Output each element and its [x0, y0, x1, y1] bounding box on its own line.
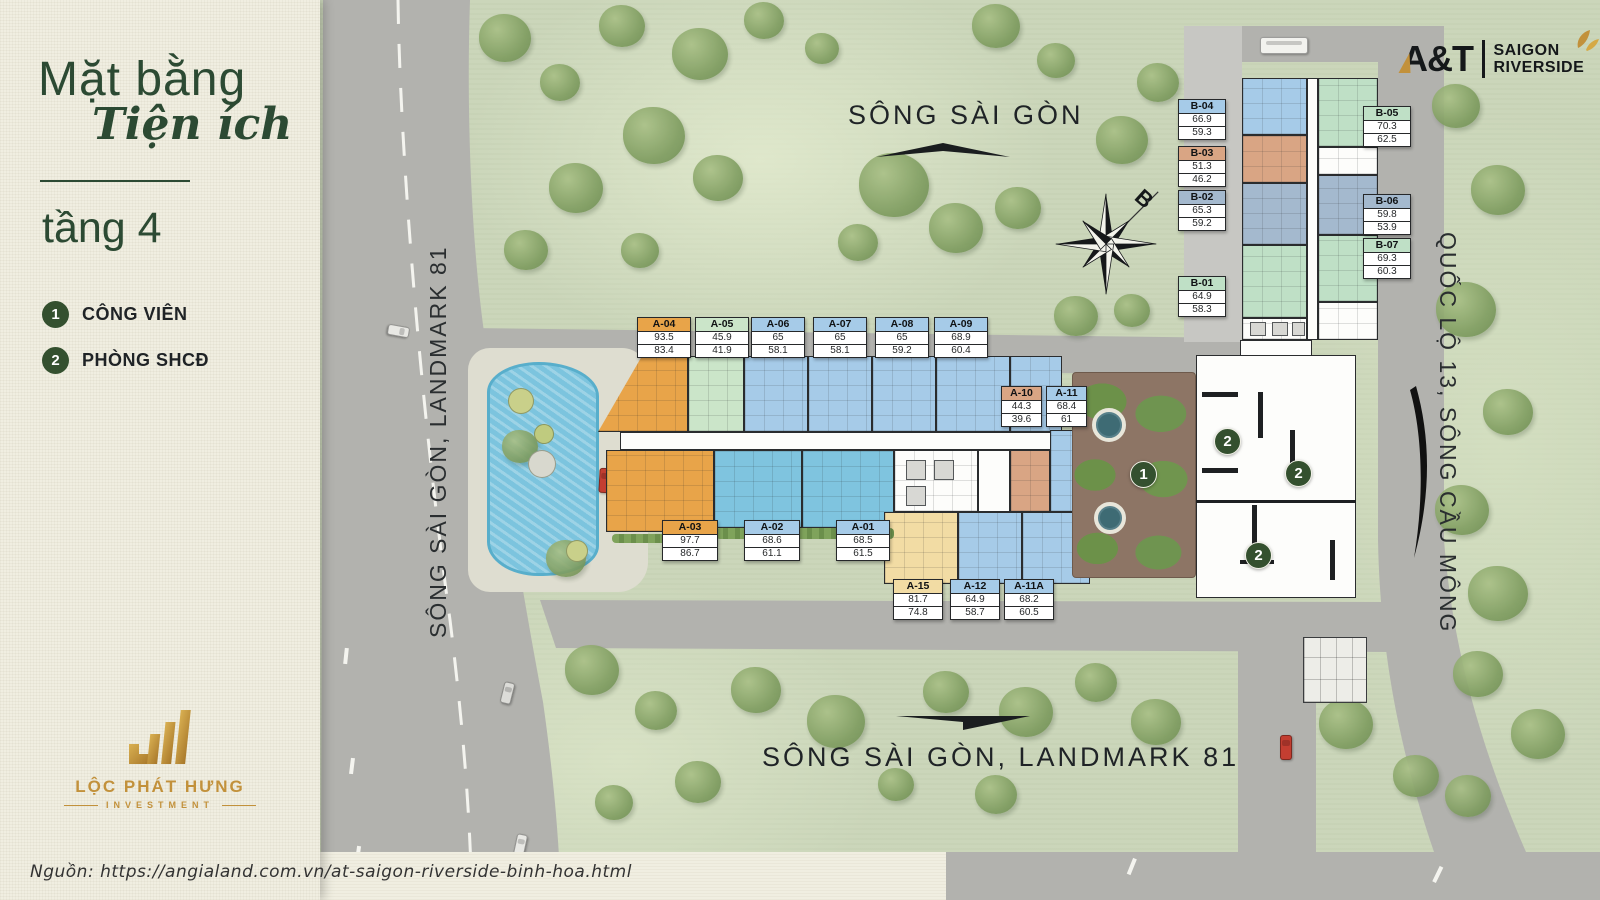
- unit-label-a-11: A-1168.461: [1046, 386, 1087, 427]
- elevator-core-cell: [1250, 322, 1266, 336]
- unit-label-a-01: A-0168.561.5: [836, 520, 890, 561]
- site-plan-page: SÔNG SÀI GÒN SÔNG SÀI GÒN, LANDMARK 81 S…: [0, 0, 1600, 900]
- tree-icon: [1393, 755, 1439, 797]
- unit-gross-area: 65: [875, 332, 929, 345]
- tree-icon: [972, 4, 1020, 48]
- wall-segment: [1258, 392, 1263, 438]
- unit-id: B-06: [1363, 194, 1411, 209]
- unit-gross-area: 64.9: [1178, 291, 1226, 304]
- planter-icon: [534, 424, 554, 444]
- unit-label-b-03: B-0351.346.2: [1178, 146, 1226, 187]
- unit-label-a-04: A-0493.583.4: [637, 317, 691, 358]
- unit-area-a-05: [688, 356, 744, 432]
- developer-logo: LỘC PHÁT HƯNG INVESTMENT: [0, 708, 320, 810]
- tree-icon: [599, 5, 645, 47]
- tree-icon: [504, 230, 548, 270]
- tree-icon: [807, 695, 865, 748]
- unit-label-b-04: B-0466.959.3: [1178, 99, 1226, 140]
- amenity-badge-2: 2: [1285, 460, 1312, 487]
- tree-icon: [540, 64, 580, 101]
- unit-area-b-02: [1242, 183, 1307, 245]
- project-logo-mark: A&T: [1402, 41, 1473, 77]
- elevator-core-cell: [906, 486, 926, 506]
- unit-net-area: 62.5: [1363, 134, 1411, 147]
- unit-label-a-03: A-0397.786.7: [662, 520, 718, 561]
- legend-label-shcd: PHÒNG SHCĐ: [82, 350, 209, 371]
- label-road-left: SÔNG SÀI GÒN, LANDMARK 81: [425, 238, 452, 638]
- logo-divider: [1482, 40, 1485, 78]
- amenity-badge-2: 2: [1214, 428, 1241, 455]
- unit-id: B-07: [1363, 238, 1411, 253]
- unit-net-area: 46.2: [1178, 174, 1226, 187]
- elevator-core-cell: [1292, 322, 1305, 336]
- unit-gross-area: 81.7: [893, 594, 943, 607]
- tree-icon: [744, 2, 784, 39]
- tree-icon: [731, 667, 781, 713]
- unit-net-area: 58.3: [1178, 304, 1226, 317]
- building-a-corridor: [620, 432, 1062, 450]
- planter-icon: [508, 388, 534, 414]
- developer-name: LỘC PHÁT HƯNG: [0, 777, 320, 797]
- unit-net-area: 59.3: [1178, 127, 1226, 140]
- unit-net-area: 60.5: [1004, 607, 1054, 620]
- tree-icon: [565, 645, 619, 695]
- unit-label-a-10: A-1044.339.6: [1001, 386, 1042, 427]
- unit-label-a-15: A-1581.774.8: [893, 579, 943, 620]
- unit-net-area: 41.9: [695, 345, 749, 358]
- unit-id: A-15: [893, 579, 943, 594]
- arrow-up-icon: [872, 140, 1014, 160]
- unit-id: A-08: [875, 317, 929, 332]
- unit-label-b-02: B-0265.359.2: [1178, 190, 1226, 231]
- gold-leaf-icon: [1574, 28, 1600, 52]
- wall-segment: [1202, 392, 1238, 397]
- tree-icon: [975, 775, 1017, 814]
- wall-segment: [1202, 468, 1238, 473]
- unit-gross-area: 66.9: [1178, 114, 1226, 127]
- unit-net-area: 83.4: [637, 345, 691, 358]
- building-a-lobby: [978, 450, 1010, 512]
- tree-icon: [693, 155, 743, 201]
- unit-gross-area: 44.3: [1001, 401, 1042, 414]
- legend-item-park: 1 CÔNG VIÊN: [42, 301, 320, 328]
- unit-id: A-11: [1046, 386, 1087, 401]
- unit-id: B-03: [1178, 146, 1226, 161]
- unit-label-a-07: A-076558.1: [813, 317, 867, 358]
- unit-id: A-09: [934, 317, 988, 332]
- tree-icon: [1137, 63, 1179, 102]
- parking-structure: [1303, 637, 1367, 703]
- tree-icon: [1432, 84, 1480, 128]
- label-river-bottom: SÔNG SÀI GÒN, LANDMARK 81: [762, 742, 1239, 773]
- curved-arrow-icon: [1398, 380, 1442, 566]
- tree-icon: [1511, 709, 1565, 759]
- tree-icon: [1445, 775, 1491, 817]
- legend-badge-1: 1: [42, 301, 69, 328]
- unit-net-area: 58.1: [751, 345, 805, 358]
- elevator-core-cell: [906, 460, 926, 480]
- unit-gross-area: 65: [751, 332, 805, 345]
- unit-area-a-08: [872, 356, 936, 432]
- legend-item-shcd: 2 PHÒNG SHCĐ: [42, 347, 320, 374]
- unit-label-b-06: B-0659.853.9: [1363, 194, 1411, 235]
- unit-id: A-10: [1001, 386, 1042, 401]
- gold-bars-icon: [123, 708, 197, 766]
- unit-gross-area: 97.7: [662, 535, 718, 548]
- unit-net-area: 61: [1046, 414, 1087, 427]
- wall-segment: [1330, 540, 1335, 580]
- unit-gross-area: 69.3: [1363, 253, 1411, 266]
- unit-id: B-05: [1363, 106, 1411, 121]
- unit-area-b-03: [1242, 135, 1307, 183]
- amenity-badge-1: 1: [1130, 461, 1157, 488]
- unit-area-a-01: [802, 450, 894, 528]
- unit-label-b-01: B-0164.958.3: [1178, 276, 1226, 317]
- tree-icon: [1468, 566, 1528, 621]
- unit-area-a-02: [714, 450, 802, 528]
- unit-net-area: 58.7: [950, 607, 1000, 620]
- unit-gross-area: 68.4: [1046, 401, 1087, 414]
- unit-net-area: 61.5: [836, 548, 890, 561]
- unit-id: A-01: [836, 520, 890, 535]
- building-b-core: [1318, 147, 1378, 175]
- unit-area-a-15: [884, 512, 958, 584]
- unit-area-a-10: [1010, 450, 1050, 512]
- unit-id: A-07: [813, 317, 867, 332]
- unit-gross-area: 65.3: [1178, 205, 1226, 218]
- tree-icon: [995, 187, 1041, 229]
- planter-icon: [566, 540, 588, 562]
- unit-id: A-12: [950, 579, 1000, 594]
- unit-gross-area: 70.3: [1363, 121, 1411, 134]
- unit-area-a-12: [958, 512, 1022, 584]
- car-icon: [1280, 735, 1292, 760]
- unit-area-b-04: [1242, 78, 1307, 135]
- road-bottom-strip: [940, 852, 1600, 900]
- unit-id: B-02: [1178, 190, 1226, 205]
- tree-icon: [675, 761, 721, 803]
- legend-label-park: CÔNG VIÊN: [82, 304, 188, 325]
- page-subtitle-script: Tiện ích: [92, 99, 320, 150]
- tree-icon: [1483, 389, 1533, 435]
- unit-id: A-03: [662, 520, 718, 535]
- water-feature-icon: [1094, 502, 1126, 534]
- tree-icon: [1037, 43, 1075, 78]
- tree-icon: [1096, 116, 1148, 164]
- unit-gross-area: 68.9: [934, 332, 988, 345]
- sidebar: Mặt bằng Tiện ích tầng 4 1 CÔNG VIÊN 2 P…: [0, 0, 320, 900]
- project-name-line1: SAIGON: [1494, 42, 1585, 59]
- elevator-core-cell: [934, 460, 954, 480]
- unit-label-b-05: B-0570.362.5: [1363, 106, 1411, 147]
- unit-gross-area: 93.5: [637, 332, 691, 345]
- unit-label-a-02: A-0268.661.1: [744, 520, 800, 561]
- tree-icon: [929, 203, 983, 253]
- unit-gross-area: 68.2: [1004, 594, 1054, 607]
- source-note: Nguồn: https://angialand.com.vn/at-saigo…: [30, 862, 632, 882]
- tree-icon: [621, 233, 659, 268]
- developer-subtitle: INVESTMENT: [0, 800, 320, 810]
- water-feature-icon: [1092, 408, 1126, 442]
- unit-net-area: 61.1: [744, 548, 800, 561]
- unit-net-area: 60.4: [934, 345, 988, 358]
- legend-badge-2: 2: [42, 347, 69, 374]
- unit-label-b-07: B-0769.360.3: [1363, 238, 1411, 279]
- building-b-corridor: [1307, 78, 1318, 340]
- unit-gross-area: 45.9: [695, 332, 749, 345]
- tree-icon: [595, 785, 633, 820]
- wall-segment: [1196, 500, 1356, 503]
- building-b-south: [1318, 302, 1378, 340]
- tree-icon: [859, 153, 929, 217]
- project-name-line2: RIVERSIDE: [1494, 59, 1585, 76]
- unit-id: A-02: [744, 520, 800, 535]
- unit-net-area: 86.7: [662, 548, 718, 561]
- tree-icon: [1319, 699, 1373, 749]
- unit-area-a-06: [744, 356, 808, 432]
- unit-label-a-11a: A-11A68.260.5: [1004, 579, 1054, 620]
- unit-net-area: 58.1: [813, 345, 867, 358]
- unit-id: A-05: [695, 317, 749, 332]
- title-divider: [40, 180, 190, 182]
- tree-icon: [838, 224, 878, 261]
- unit-gross-area: 65: [813, 332, 867, 345]
- elevator-core-cell: [1272, 322, 1288, 336]
- unit-net-area: 39.6: [1001, 414, 1042, 427]
- tree-icon: [1054, 296, 1098, 336]
- unit-label-a-12: A-1264.958.7: [950, 579, 1000, 620]
- unit-label-a-09: A-0968.960.4: [934, 317, 988, 358]
- tree-icon: [549, 163, 603, 213]
- unit-id: B-04: [1178, 99, 1226, 114]
- unit-area-a-07: [808, 356, 872, 432]
- unit-gross-area: 59.8: [1363, 209, 1411, 222]
- unit-net-area: 53.9: [1363, 222, 1411, 235]
- tree-icon: [623, 107, 685, 164]
- unit-id: A-04: [637, 317, 691, 332]
- unit-area-a-09: [936, 356, 1010, 432]
- floor-label: tầng 4: [42, 204, 320, 253]
- legend: 1 CÔNG VIÊN 2 PHÒNG SHCĐ: [42, 301, 320, 374]
- tree-icon: [1075, 663, 1117, 702]
- unit-id: A-11A: [1004, 579, 1054, 594]
- tree-icon: [1471, 165, 1525, 215]
- unit-net-area: 60.3: [1363, 266, 1411, 279]
- unit-label-a-06: A-066558.1: [751, 317, 805, 358]
- tree-icon: [1131, 699, 1181, 745]
- unit-id: A-06: [751, 317, 805, 332]
- unit-gross-area: 68.5: [836, 535, 890, 548]
- unit-area-b-01: [1242, 245, 1307, 318]
- tree-icon: [479, 14, 531, 62]
- unit-gross-area: 68.6: [744, 535, 800, 548]
- tree-icon: [923, 671, 969, 713]
- planter-icon: [528, 450, 556, 478]
- amenity-badge-2: 2: [1245, 542, 1272, 569]
- tree-icon: [805, 33, 839, 64]
- truck-icon: [1260, 37, 1308, 54]
- unit-id: B-01: [1178, 276, 1226, 291]
- tree-icon: [635, 691, 677, 730]
- project-logo: A&T SAIGON RIVERSIDE: [1402, 40, 1584, 78]
- unit-label-a-08: A-086559.2: [875, 317, 929, 358]
- unit-label-a-05: A-0545.941.9: [695, 317, 749, 358]
- unit-net-area: 59.2: [1178, 218, 1226, 231]
- arrow-down-icon: [893, 712, 1033, 732]
- unit-gross-area: 51.3: [1178, 161, 1226, 174]
- tree-icon: [672, 28, 728, 80]
- unit-net-area: 59.2: [875, 345, 929, 358]
- label-river-top: SÔNG SÀI GÒN: [848, 100, 1084, 131]
- unit-net-area: 74.8: [893, 607, 943, 620]
- unit-gross-area: 64.9: [950, 594, 1000, 607]
